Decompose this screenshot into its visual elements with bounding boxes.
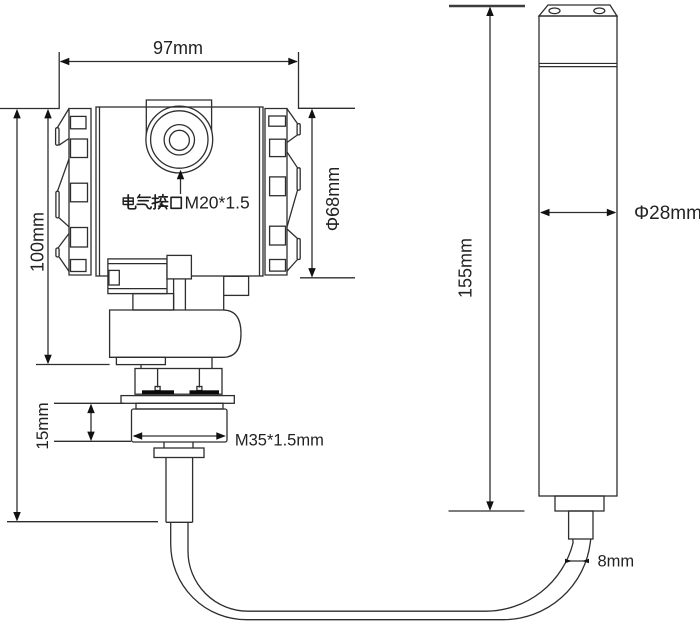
svg-text:M35*1.5mm: M35*1.5mm	[235, 432, 324, 450]
svg-text:M20*1.5: M20*1.5	[185, 193, 250, 213]
svg-text:Φ68mm: Φ68mm	[323, 167, 343, 231]
svg-text:100mm: 100mm	[27, 212, 47, 272]
svg-text:155mm: 155mm	[455, 238, 475, 298]
svg-text:97mm: 97mm	[153, 38, 203, 58]
svg-text:15mm: 15mm	[33, 402, 52, 449]
svg-text:Φ28mm: Φ28mm	[634, 203, 700, 224]
svg-text:8mm: 8mm	[598, 553, 635, 571]
